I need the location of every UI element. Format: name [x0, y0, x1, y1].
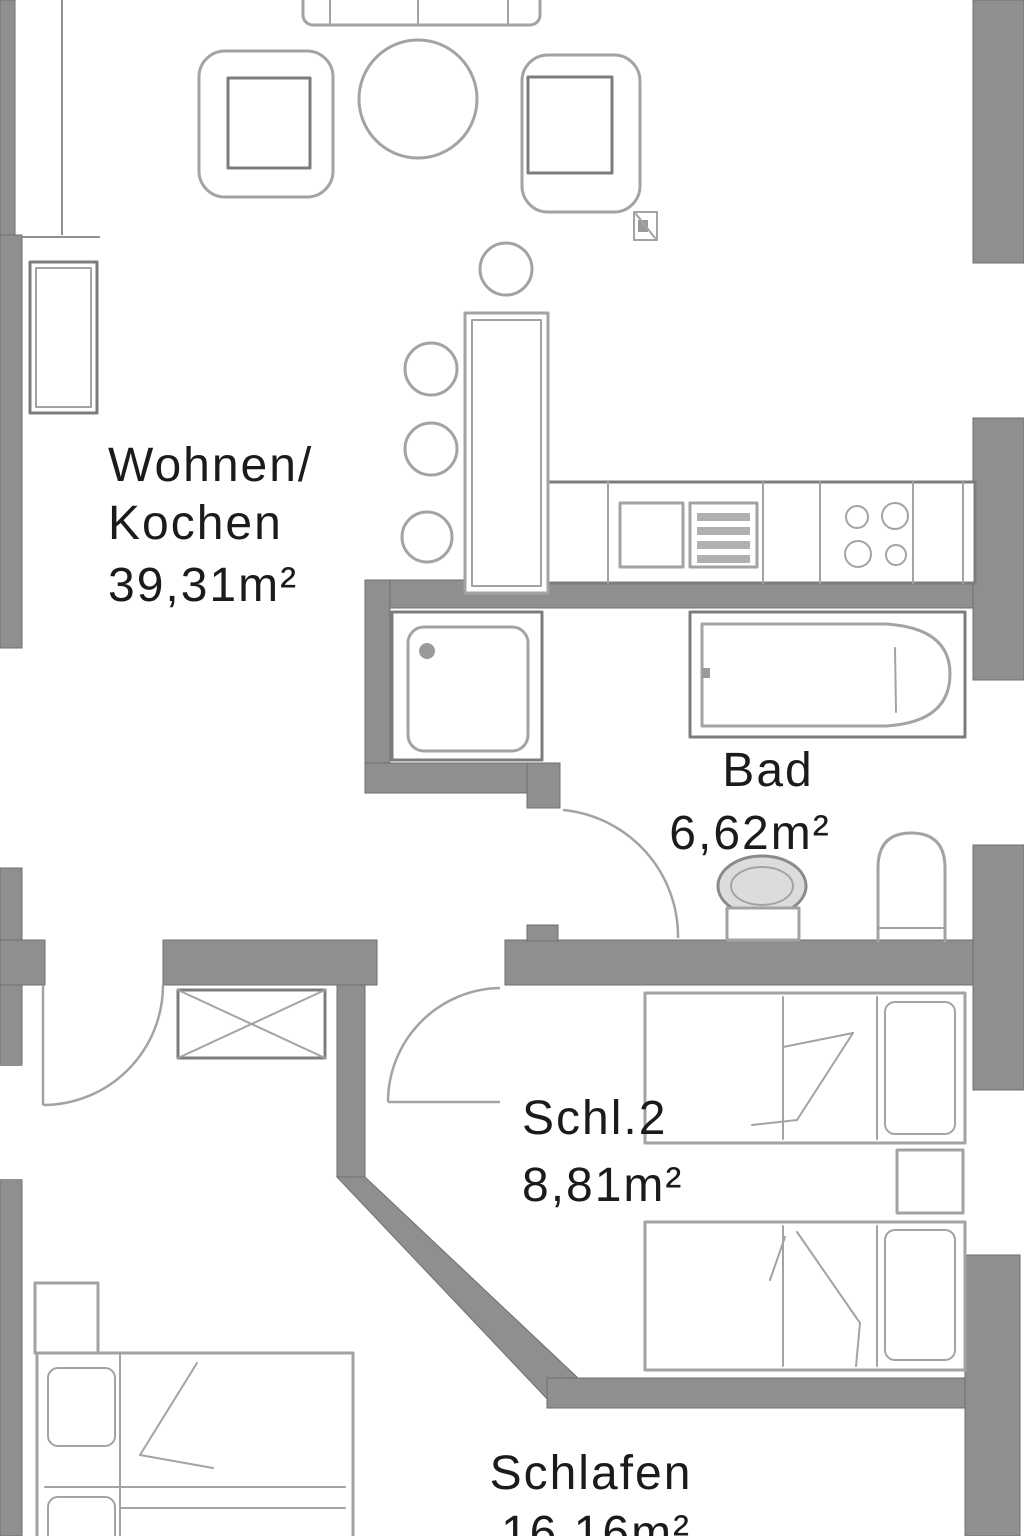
shower-tray: [392, 612, 542, 760]
door-arc-bedroom2: [388, 988, 500, 1102]
radiator-icon: [30, 262, 97, 413]
armchair-left-icon: [199, 51, 333, 197]
bathtub-faucet: [702, 668, 710, 678]
bath-area: 6,62m²: [669, 807, 830, 860]
nightstand-icon: [897, 1150, 963, 1213]
bathtub-line: [895, 648, 896, 712]
wall-bath-left: [365, 580, 390, 793]
bed2-pillow: [885, 1230, 955, 1360]
bed1-frame: [645, 993, 965, 1143]
wall-left-lower: [0, 985, 22, 1065]
armchair-right-icon: [522, 55, 640, 212]
bed2-blanket-fold: [856, 1323, 860, 1366]
armchair-left-seat: [228, 78, 310, 168]
wall-bedroom2-top: [505, 940, 975, 985]
washbasin-outline: [878, 833, 945, 941]
floor-plan: Wohnen/ Kochen 39,31m² Bad 6,62m² Schl.2…: [0, 0, 1024, 1536]
sofa-icon: [303, 0, 540, 25]
wall-left-bottom: [0, 1180, 22, 1536]
wall-right-2: [973, 418, 1024, 680]
living-room-label-line2: Kochen: [108, 497, 283, 550]
wall-right-3: [973, 845, 1024, 1090]
toilet-base: [727, 908, 799, 940]
armchair-right-seat: [528, 77, 612, 173]
kitchen-counter: [548, 482, 975, 583]
wall-left-top-strip: [0, 0, 15, 235]
wall-right-4: [965, 1255, 1020, 1536]
bedroom2-area: 8,81m²: [522, 1159, 683, 1212]
double-bed-blanket-fold: [140, 1455, 213, 1468]
double-bed-pillow: [48, 1497, 115, 1536]
wall-corridor-right: [337, 985, 365, 1177]
shower-drain: [419, 643, 435, 659]
bed-icon: [645, 1222, 965, 1370]
sofa-outline: [303, 0, 540, 25]
walls: [0, 0, 1024, 1536]
bath-label: Bad: [722, 744, 813, 797]
wardrobe-icon: [178, 990, 325, 1058]
armchair-left-outline: [199, 51, 333, 197]
dishwasher-bar: [697, 527, 750, 535]
coffee-table-icon: [359, 40, 477, 158]
wall-bedroom2-bottom: [547, 1378, 975, 1408]
bed1-blanket-fold: [783, 1033, 853, 1047]
bar-stool-icon: [402, 512, 452, 562]
bedroom2-furniture: [645, 993, 965, 1370]
dishwasher-bar: [697, 555, 750, 563]
living-room-label: Wohnen/: [108, 439, 313, 492]
bed2-blanket-fold: [797, 1232, 860, 1323]
shower-icon: [392, 612, 542, 760]
bed-icon: [645, 993, 965, 1143]
outlet-symbol-icon: [634, 212, 657, 240]
wall-right-1: [973, 0, 1024, 263]
wall-shower-bottom: [365, 763, 545, 793]
bedroom1-furniture: [35, 1283, 353, 1536]
door-arc-bath: [563, 810, 678, 938]
living-room-furniture: [30, 0, 657, 413]
island-outline: [465, 313, 548, 593]
radiator-outline: [30, 262, 97, 413]
dishwasher-bar: [697, 513, 750, 521]
living-room-area: 39,31m²: [108, 559, 298, 612]
kitchen: [402, 243, 975, 593]
wall-left-entry-block: [0, 940, 45, 985]
double-bed-blanket-fold: [140, 1363, 197, 1455]
dishwasher-bar: [697, 541, 750, 549]
bathtub-icon: [690, 612, 965, 737]
bedroom1-area: 16,16m²: [501, 1507, 691, 1536]
wall-bath-door-stub: [527, 763, 560, 808]
bar-stool-icon: [405, 343, 457, 395]
toilet-icon: [718, 856, 806, 940]
bar-stool-icon: [480, 243, 532, 295]
kitchen-island-icon: [465, 313, 548, 593]
wall-corridor-center: [163, 940, 377, 985]
bedroom2-label: Schl.2: [522, 1092, 667, 1145]
nightstand-icon: [35, 1283, 98, 1353]
bed1-blanket-fold: [752, 1120, 797, 1125]
armchair-right-outline: [522, 55, 640, 212]
bar-stool-icon: [405, 423, 457, 475]
door-arc-bedroom1: [43, 985, 163, 1105]
double-bed-pillow: [48, 1368, 115, 1446]
bed1-pillow: [885, 1002, 955, 1134]
washbasin-icon: [878, 833, 945, 941]
wall-left-upper: [0, 235, 22, 648]
floor-plan-drawing: Wohnen/ Kochen 39,31m² Bad 6,62m² Schl.2…: [0, 0, 1024, 1536]
double-bed-icon: [37, 1353, 353, 1536]
bed1-blanket-fold: [797, 1033, 853, 1120]
corridor: [178, 990, 325, 1058]
wall-jamb-stub: [527, 925, 558, 941]
bedroom1-label: Schlafen: [490, 1447, 693, 1500]
